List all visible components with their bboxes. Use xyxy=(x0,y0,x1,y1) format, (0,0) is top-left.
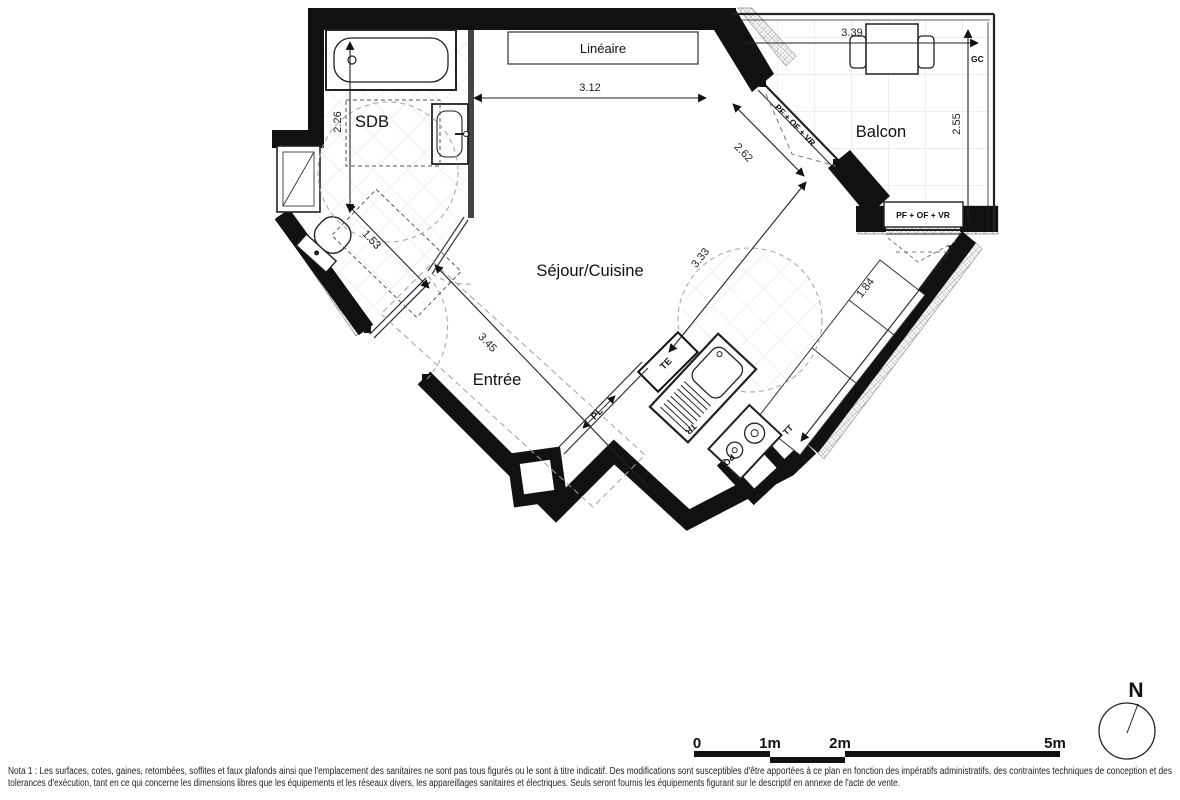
dim-label-2-55: 2.55 xyxy=(951,113,963,134)
gc-label: GC xyxy=(971,54,984,64)
wall-left-upper xyxy=(308,8,324,140)
room-label-balcon: Balcon xyxy=(856,123,906,141)
compass-needle xyxy=(1127,704,1138,733)
chair-left xyxy=(850,36,866,68)
lineaire-label: Linéaire xyxy=(580,41,626,56)
sdb-window xyxy=(277,146,320,212)
washbasin xyxy=(432,104,470,164)
scale-5m: 5m xyxy=(1044,735,1066,752)
wall-top xyxy=(310,8,736,30)
nota-line-1: Nota 1 : Les surfaces, cotes, gaines, re… xyxy=(8,766,1172,777)
room-label-entree: Entrée xyxy=(473,371,522,389)
compass-circle xyxy=(1099,703,1155,759)
dim-label-3-39: 3.39 xyxy=(841,27,862,39)
bathtub xyxy=(326,30,456,90)
scale-bar: 0 1m 2m 5m xyxy=(693,735,1066,763)
scale-seg-0-1 xyxy=(694,751,770,757)
duct-shaft-1 xyxy=(507,447,568,508)
lineaire-box: Linéaire xyxy=(508,32,698,64)
scale-seg-1-2 xyxy=(770,757,845,763)
floor-plan-svg: Linéaire 3.12 3.39 2.55 2.26 1.53 3.45 3… xyxy=(0,0,1180,800)
chair-right xyxy=(918,36,934,68)
room-label-sdb: SDB xyxy=(355,113,389,131)
balcony-window-label: PF + OF + VR xyxy=(896,210,950,220)
dim-label-2-26: 2.26 xyxy=(332,111,344,132)
table xyxy=(866,24,918,74)
scale-0: 0 xyxy=(693,735,701,752)
floor-plan-page: Linéaire 3.12 3.39 2.55 2.26 1.53 3.45 3… xyxy=(0,0,1180,800)
dim-label-3-12: 3.12 xyxy=(579,82,600,94)
nota-line-2: tolerances d'exécution, tant en ce qui c… xyxy=(8,778,900,789)
dim-label-3-45: 3.45 xyxy=(475,331,499,355)
scale-seg-2-5 xyxy=(845,751,1060,757)
north-compass: N xyxy=(1099,679,1155,759)
wall-balcony-bottom-right xyxy=(960,206,998,232)
scale-2m: 2m xyxy=(829,735,851,752)
wall-balcony-bottom-left xyxy=(856,206,886,232)
north-label: N xyxy=(1128,679,1143,702)
room-label-sejour: Séjour/Cuisine xyxy=(536,262,643,280)
dim-label-2-62: 2.62 xyxy=(731,141,755,165)
scale-1m: 1m xyxy=(759,735,781,752)
